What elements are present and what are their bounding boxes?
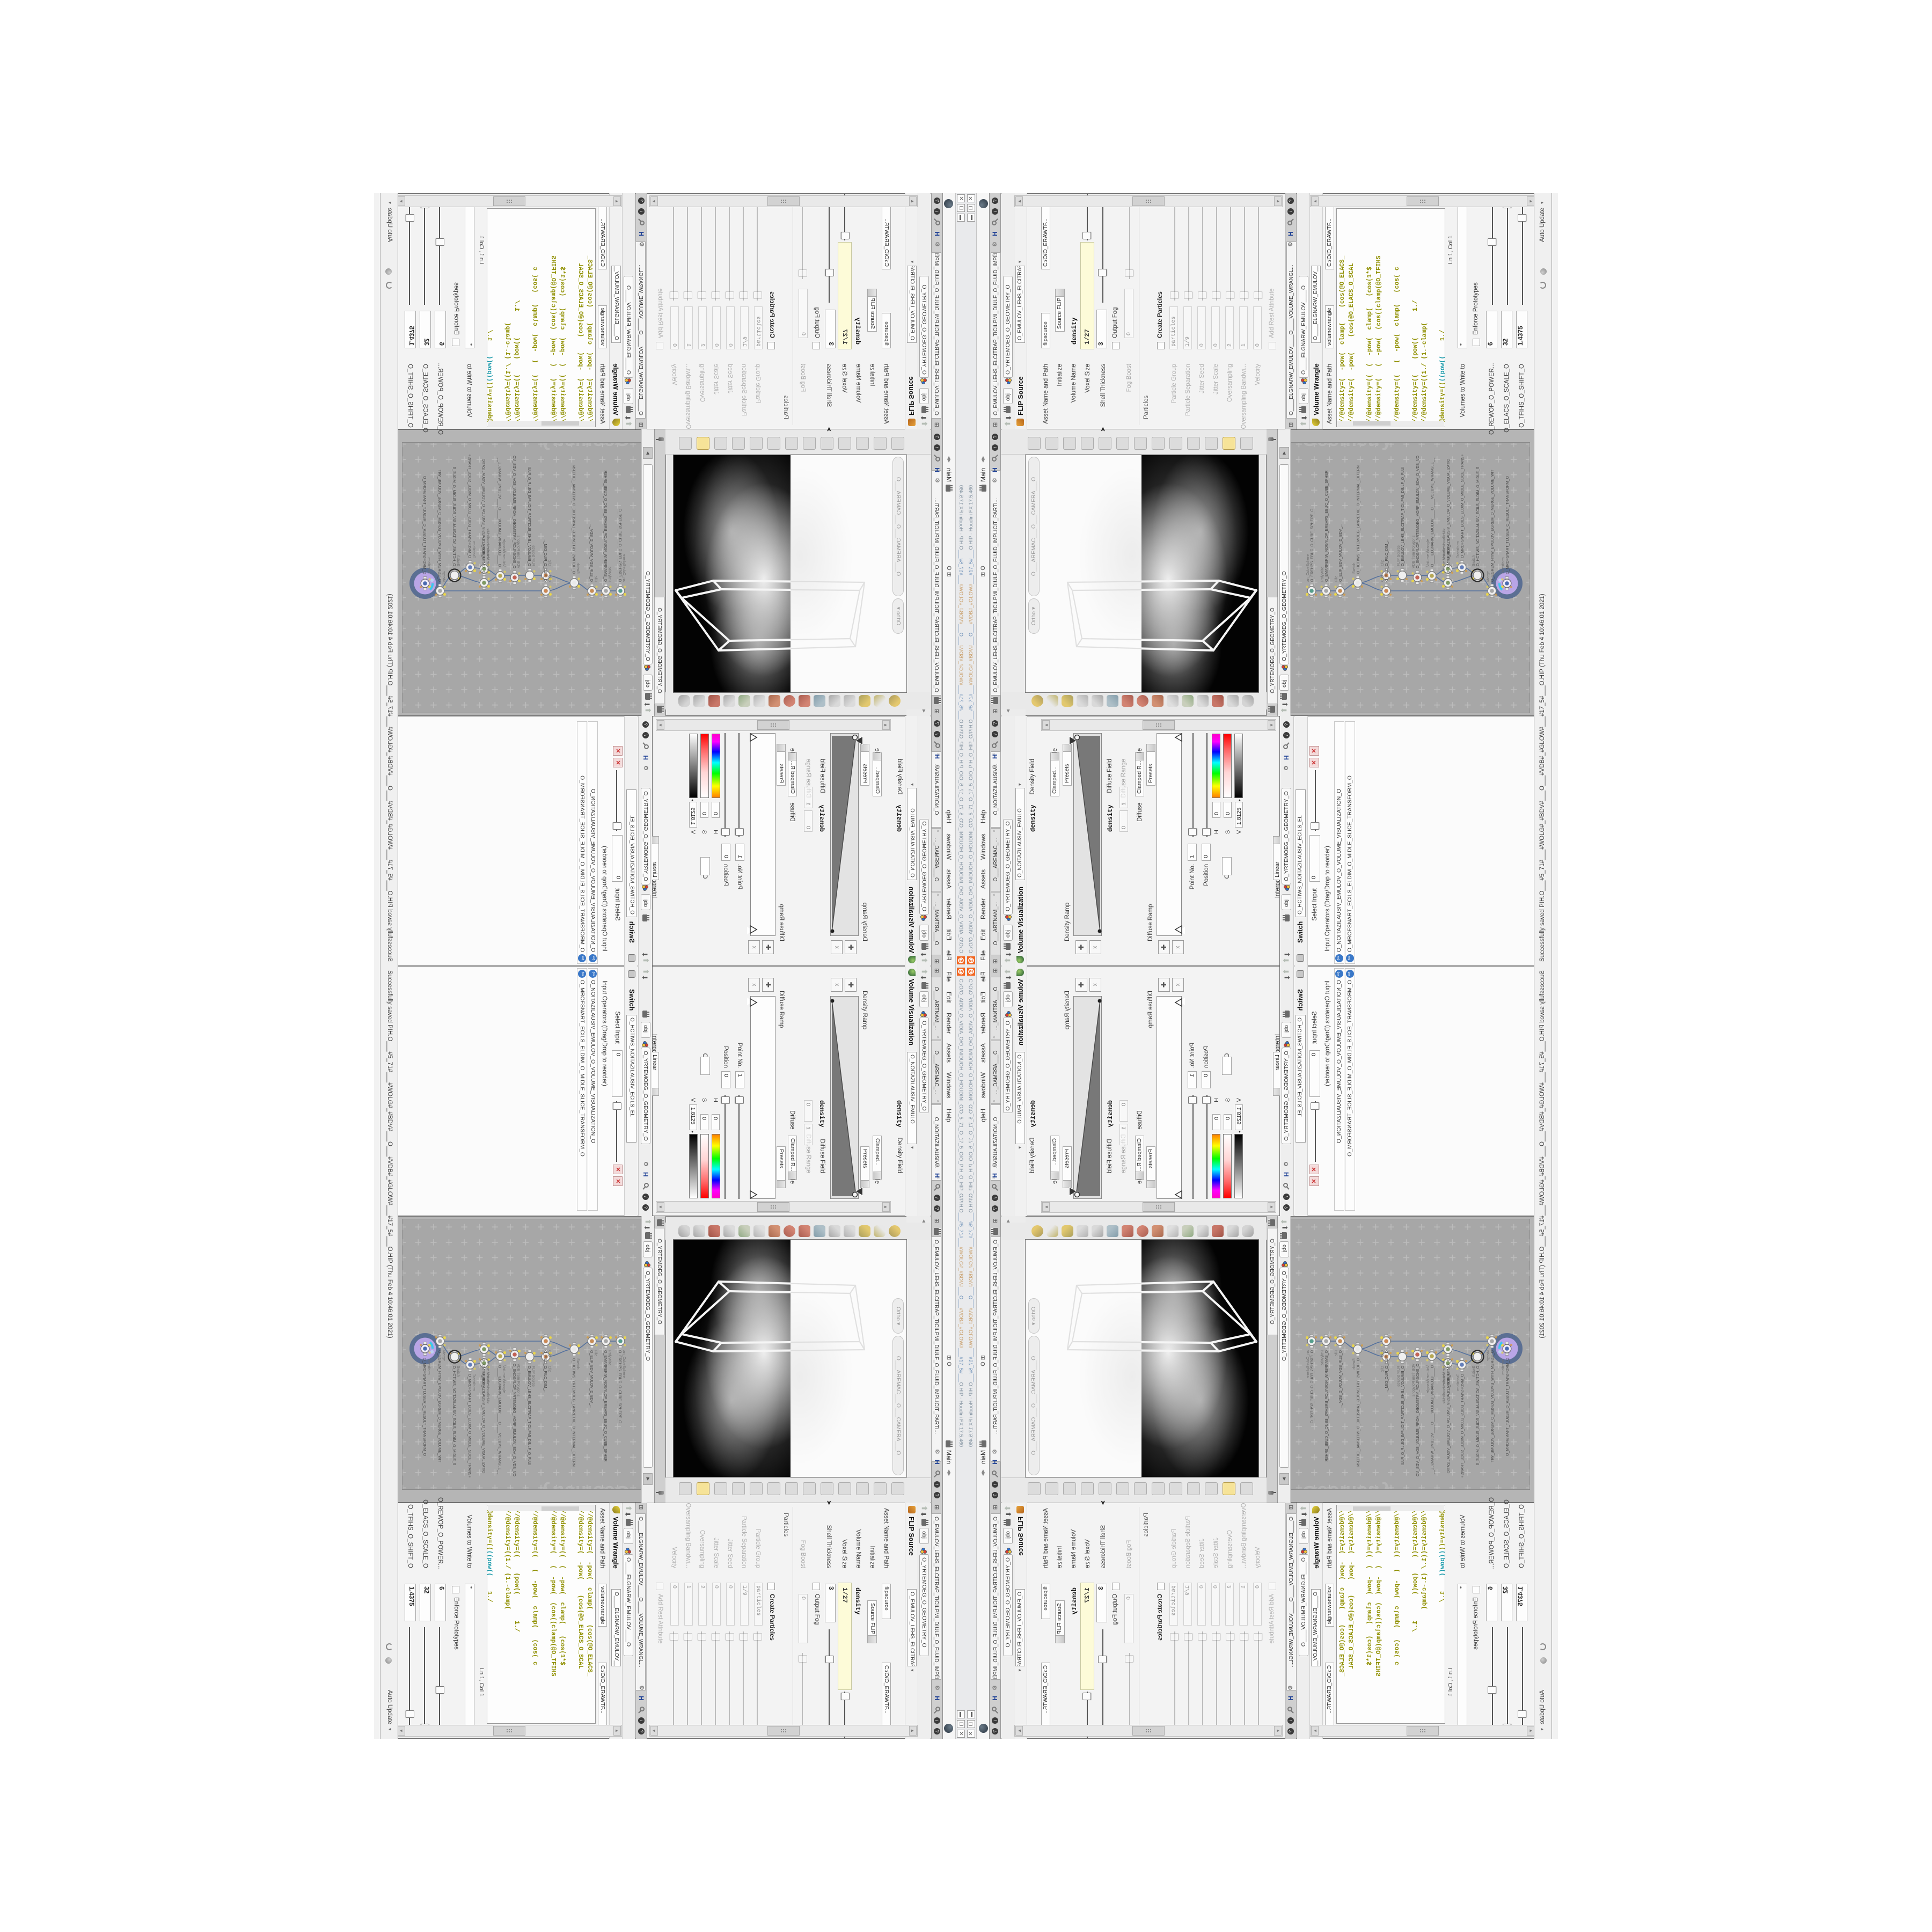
svg-text:Geometry: Geometry [540,1482,630,1489]
svg-text:Geometry: Geometry [540,443,630,450]
svg-text:Geometry: Geometry [1302,443,1392,450]
svg-text:Geometry: Geometry [1302,1482,1392,1489]
